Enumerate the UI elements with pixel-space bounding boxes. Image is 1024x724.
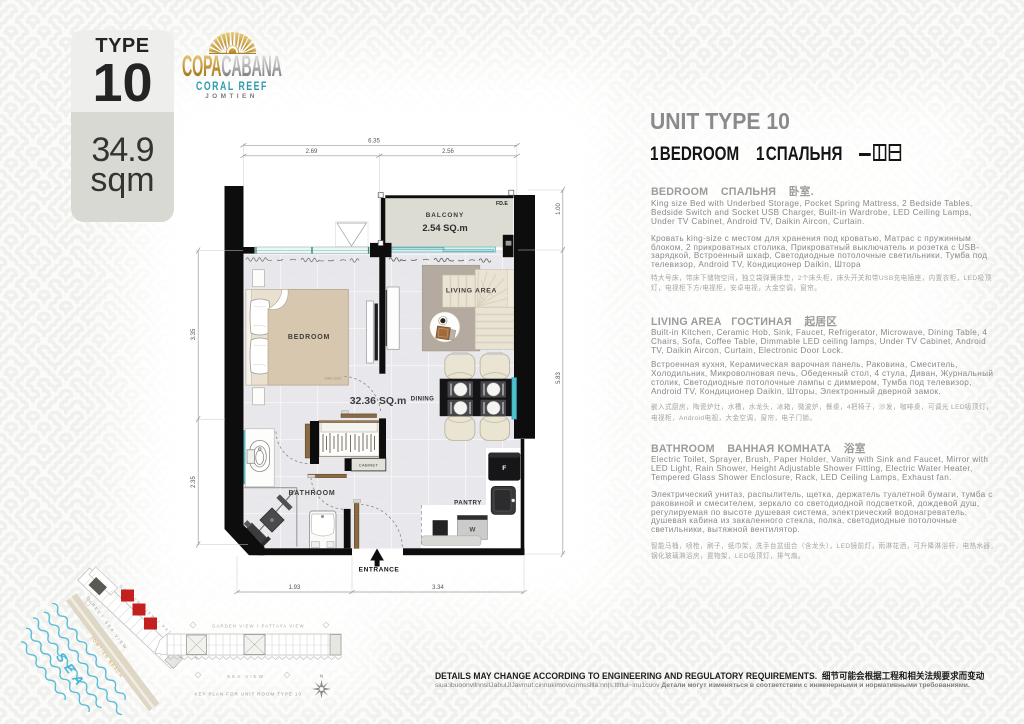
svg-text:32.36 SQ.m: 32.36 SQ.m: [350, 395, 407, 407]
svg-text:KEY PLAN FOR UNIT ROOM TYPE 10: KEY PLAN FOR UNIT ROOM TYPE 10: [195, 692, 302, 697]
svg-text:2.69: 2.69: [306, 149, 318, 155]
svg-text:SEA VIEW: SEA VIEW: [227, 674, 265, 679]
svg-text:BALCONY: BALCONY: [426, 212, 465, 219]
svg-text:LIVING AREA: LIVING AREA: [446, 288, 497, 295]
svg-text:BATHROOM: BATHROOM: [288, 490, 335, 497]
svg-text:PANTRY: PANTRY: [454, 500, 482, 507]
svg-text:2.54 SQ.m: 2.54 SQ.m: [422, 222, 467, 233]
svg-text:FD.E: FD.E: [496, 201, 508, 207]
svg-text:2.56: 2.56: [442, 149, 454, 155]
svg-text:ENTRANCE: ENTRANCE: [359, 567, 400, 574]
svg-text:2.35: 2.35: [191, 476, 197, 488]
svg-text:BEDROOM: BEDROOM: [288, 334, 330, 341]
svg-text:GARDEN VIEW / PATTAYA VIEW: GARDEN VIEW / PATTAYA VIEW: [212, 624, 305, 629]
svg-text:3.35: 3.35: [191, 328, 197, 340]
svg-text:W: W: [469, 527, 476, 534]
svg-text:F: F: [502, 465, 506, 472]
svg-text:6.35: 6.35: [368, 139, 380, 145]
svg-text:1.93: 1.93: [289, 585, 301, 591]
svg-text:SEA: SEA: [53, 649, 90, 691]
svg-text:1.00: 1.00: [556, 203, 562, 215]
svg-text:DINING: DINING: [411, 397, 434, 403]
svg-text:3.34: 3.34: [432, 585, 444, 591]
svg-text:KING SIZE: KING SIZE: [325, 377, 343, 381]
svg-text:CABINET: CABINET: [359, 463, 379, 468]
svg-text:N: N: [320, 674, 323, 679]
svg-text:5.83: 5.83: [556, 372, 562, 384]
